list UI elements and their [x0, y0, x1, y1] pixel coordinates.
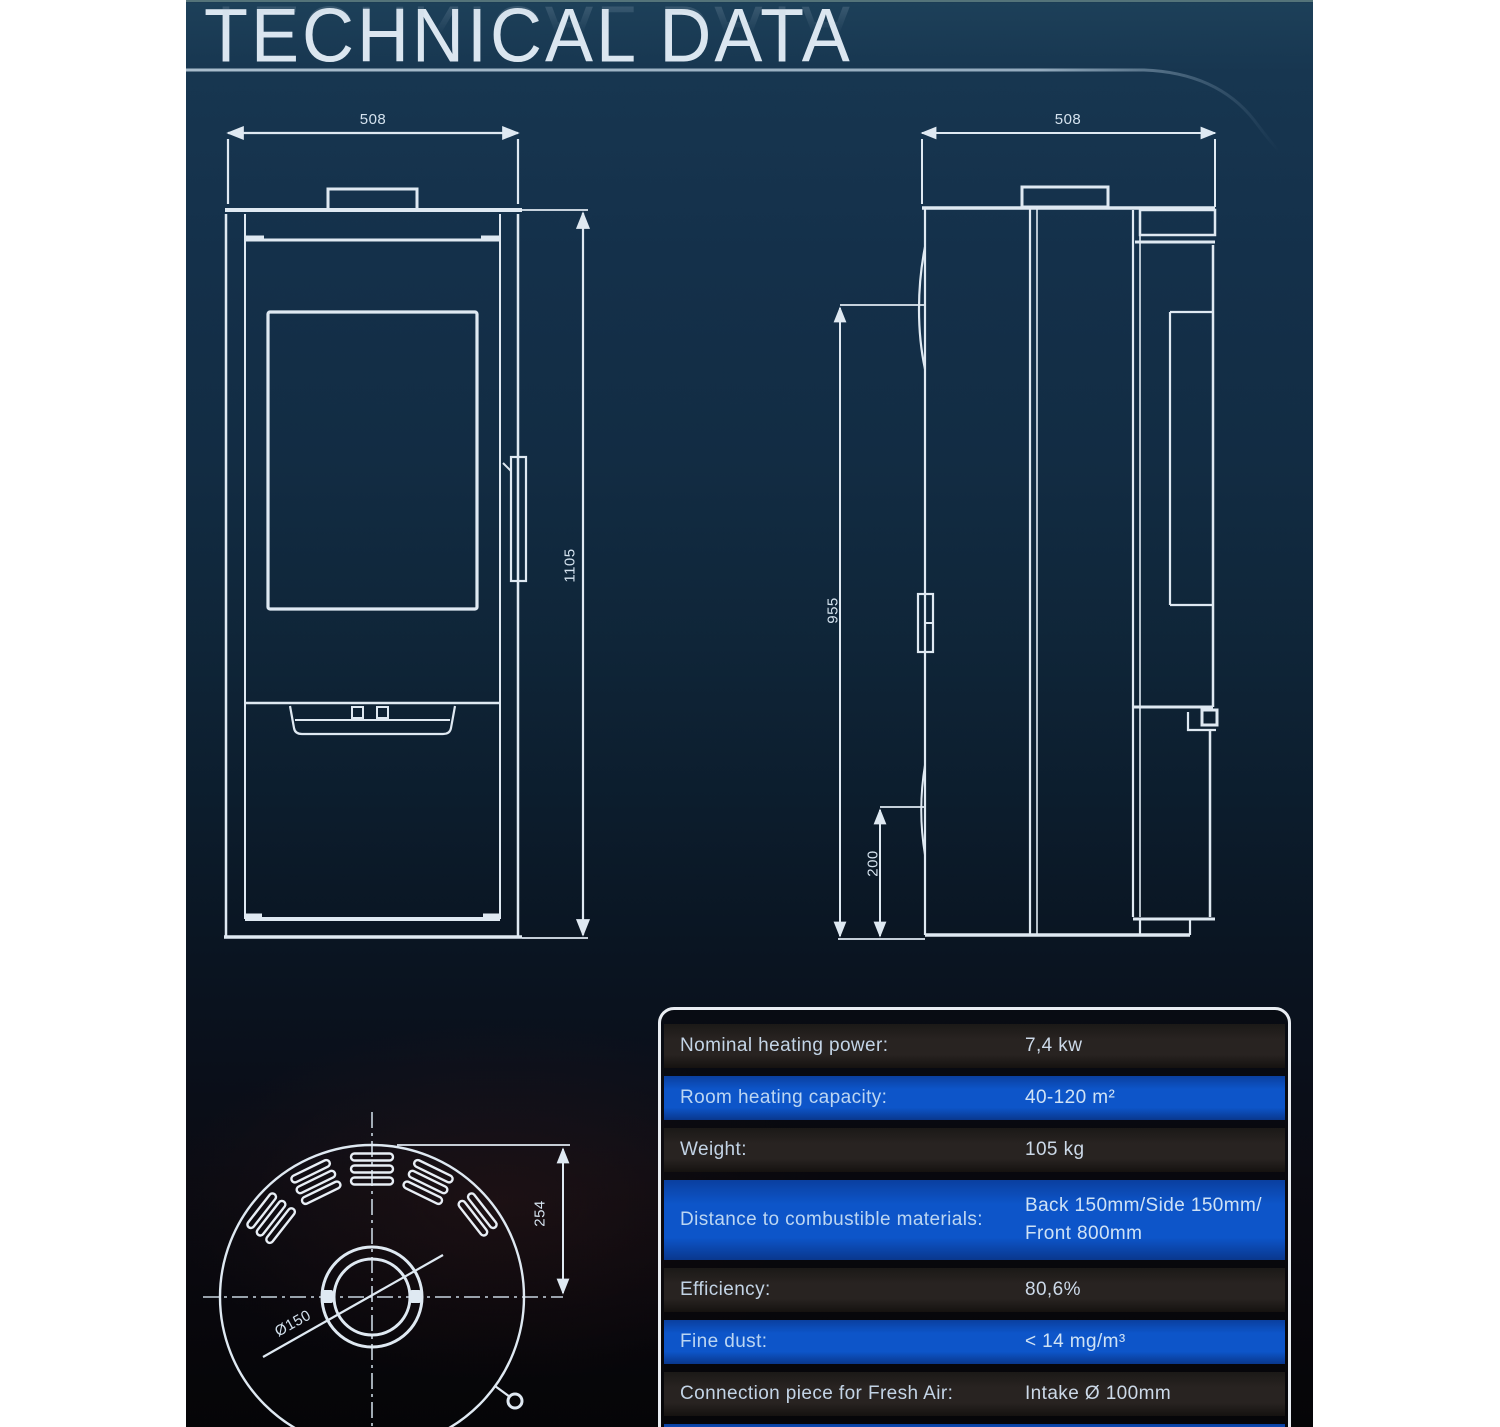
- spec-value: 80,6%: [1025, 1268, 1081, 1312]
- spec-row-fresh-air-connection: Connection piece for Fresh Air: Intake Ø…: [664, 1372, 1285, 1416]
- door-key-eyelet: [508, 1394, 522, 1408]
- bottom-view-drawing: 254 Ø150: [195, 1087, 585, 1427]
- dim-side-depth: 508: [1033, 111, 1103, 128]
- door-latch: [1202, 710, 1217, 725]
- dim-front-height: 1105: [562, 536, 579, 596]
- dim-side-height: 955: [825, 581, 842, 641]
- spec-value: 105 kg: [1025, 1128, 1084, 1172]
- front-view-stove-outline: [224, 189, 526, 937]
- spec-label: Fine dust:: [680, 1320, 767, 1364]
- spec-row-nominal-heating-power: Nominal heating power: 7,4 kw: [664, 1024, 1285, 1068]
- dim-flue-offset: 254: [532, 1184, 549, 1244]
- dim-side-clearance: 200: [865, 834, 882, 894]
- spec-value: Intake Ø 100mm: [1025, 1372, 1171, 1416]
- spec-row-weight: Weight: 105 kg: [664, 1128, 1285, 1172]
- spec-label: Distance to combustible materials:: [680, 1180, 983, 1260]
- spec-label: Weight:: [680, 1128, 747, 1172]
- flue-collar: [328, 189, 417, 210]
- dim-front-width: 508: [338, 111, 408, 128]
- spec-value: < 14 mg/m³: [1025, 1320, 1126, 1364]
- top-plate-front-edge: [1140, 210, 1215, 235]
- spec-row-room-heating-capacity: Room heating capacity: 40-120 m²: [664, 1076, 1285, 1120]
- spec-value: Back 150mm/Side 150mm/ Front 800mm: [1025, 1180, 1262, 1260]
- spec-label: Efficiency:: [680, 1268, 771, 1312]
- bottom-view-svg: [195, 1087, 585, 1427]
- side-view-stove-outline: [918, 187, 1217, 935]
- front-view-drawing: 508 1105: [210, 107, 605, 957]
- centerlines: [203, 1112, 563, 1427]
- door-glass-window: [268, 312, 477, 609]
- side-view-svg: [825, 107, 1225, 957]
- spec-table: Nominal heating power: 7,4 kw Room heati…: [658, 1007, 1291, 1427]
- flue-collar-side: [1022, 187, 1108, 207]
- datasheet-panel: TECHNICAL DATA TECHNICAL DATA: [186, 0, 1313, 1427]
- side-view-drawing: 508 955 200: [825, 107, 1225, 957]
- spec-label: Nominal heating power:: [680, 1024, 888, 1068]
- datasheet-page: TECHNICAL DATA TECHNICAL DATA: [0, 0, 1500, 1427]
- spec-row-fine-dust: Fine dust: < 14 mg/m³: [664, 1320, 1285, 1364]
- side-view-dimension-lines: [838, 133, 1215, 939]
- spec-label: Room heating capacity:: [680, 1076, 887, 1120]
- spec-value: 7,4 kw: [1025, 1024, 1082, 1068]
- spec-label: Connection piece for Fresh Air:: [680, 1372, 953, 1416]
- spec-row-efficiency: Efficiency: 80,6%: [664, 1268, 1285, 1312]
- front-view-svg: [210, 107, 605, 957]
- spec-row-distance-to-combustibles: Distance to combustible materials: Back …: [664, 1180, 1285, 1260]
- spec-value: 40-120 m²: [1025, 1076, 1115, 1120]
- front-view-dimension-lines: [228, 133, 588, 938]
